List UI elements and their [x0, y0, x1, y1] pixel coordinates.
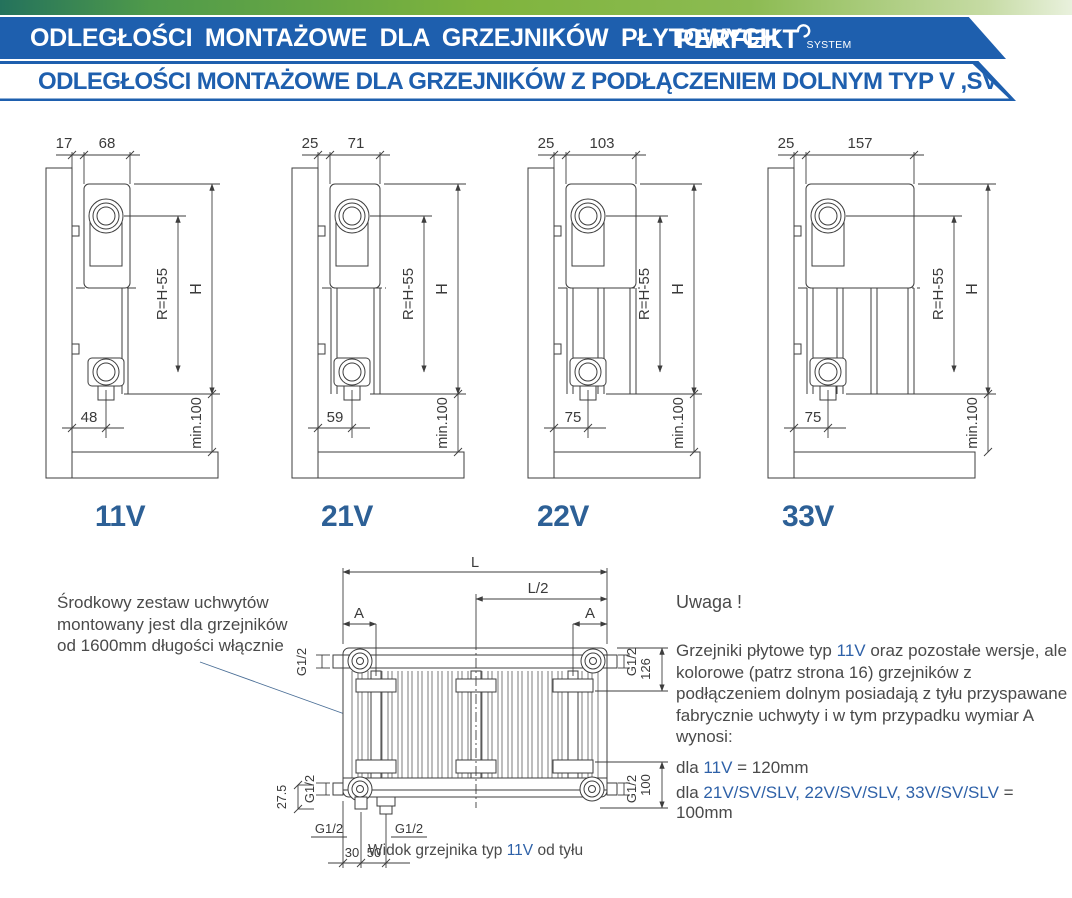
- dim-radius: R=H-55: [930, 268, 947, 320]
- dim-floor-clearance: min.100: [189, 397, 205, 449]
- diagram-22v-drawing: 25 103 R=H-55 H min.100 75: [500, 128, 750, 490]
- back-view-drawing: L L/2 A A G1/2 G1/2 126 G1/2 27.5 G1/2 1…: [270, 556, 680, 886]
- note-line: od 1600mm długości włącznie: [57, 635, 288, 657]
- type-label-21v: 21V: [307, 500, 387, 534]
- type-label-33v: 33V: [768, 500, 848, 534]
- dim-bracket-offset-left: A: [354, 605, 364, 622]
- dim-27-5: 27.5: [275, 785, 289, 809]
- thread-bottom-pipe-left: G1/2: [315, 821, 343, 836]
- dim-wall-gap: 25: [538, 135, 555, 152]
- diagram-11v-drawing: 17 68 R=H-55 H min.100 48: [18, 128, 268, 490]
- dim-floor-clearance: min.100: [671, 397, 687, 449]
- dim-half-length: L/2: [528, 580, 549, 597]
- center-bracket-note: Środkowy zestaw uchwytów montowany jest …: [57, 592, 288, 657]
- dim-radius: R=H-55: [154, 268, 171, 320]
- dim-100: 100: [638, 774, 653, 796]
- caption-suffix: od tyłu: [533, 842, 583, 859]
- note-line: Środkowy zestaw uchwytów: [57, 592, 288, 614]
- dimension-texts: 25 71 R=H-55 H min.100 59: [302, 135, 451, 449]
- title-banner: ODLEGŁOŚCI MONTAŻOWE DLA GRZEJNIKÓW PŁYT…: [0, 17, 1006, 59]
- dim-126: 126: [638, 658, 653, 680]
- thread-top-left: G1/2: [294, 648, 309, 676]
- warning-note: Uwaga ! Grzejniki płytowe typ 11V oraz p…: [676, 592, 1068, 823]
- rule-11v: dla 11V = 120mm: [676, 758, 1068, 778]
- dim-height: H: [670, 283, 687, 295]
- dim-radius: R=H-55: [636, 268, 653, 320]
- rule-value: = 120mm: [732, 758, 808, 777]
- wall-and-radiator: [768, 168, 975, 478]
- diagram-11v: 17 68 R=H-55 H min.100 48: [18, 128, 268, 495]
- warning-paragraph: Grzejniki płytowe typ 11V oraz pozostałe…: [676, 640, 1068, 748]
- dim-bottom-offset: 75: [565, 409, 582, 426]
- diagram-33v-drawing: 25 157 R=H-55 H min.100 75: [740, 128, 1030, 490]
- dim-wall-gap: 17: [56, 135, 73, 152]
- dim-length: L: [471, 556, 479, 571]
- dim-depth: 68: [99, 135, 116, 152]
- brand-logo: PERFEKT SYSTEM: [676, 17, 852, 59]
- dim-30: 30: [345, 845, 359, 860]
- rule-prefix: dla: [676, 758, 703, 777]
- page: ODLEGŁOŚCI MONTAŻOWE DLA GRZEJNIKÓW PŁYT…: [0, 0, 1072, 898]
- dim-bottom-offset: 59: [327, 409, 344, 426]
- rule-other-types: dla 21V/SV/SLV, 22V/SV/SLV, 33V/SV/SLV =…: [676, 783, 1068, 823]
- dimension-texts: 25 157 R=H-55 H min.100 75: [778, 135, 981, 449]
- subtitle-ribbon: ODLEGŁOŚCI MONTAŻOWE DLA GRZEJNIKÓW Z PO…: [0, 61, 1016, 101]
- dim-height: H: [434, 283, 451, 295]
- dim-bottom-offset: 48: [81, 409, 98, 426]
- dim-depth: 71: [348, 135, 365, 152]
- diagram-21v-drawing: 25 71 R=H-55 H min.100 59: [264, 128, 514, 490]
- dimension-texts: 25 103 R=H-55 H min.100 75: [538, 135, 687, 449]
- note-line: montowany jest dla grzejników: [57, 614, 288, 636]
- dim-floor-clearance: min.100: [435, 397, 451, 449]
- bottom-connections: [355, 797, 395, 814]
- subtitle-ribbon-inner: ODLEGŁOŚCI MONTAŻOWE DLA GRZEJNIKÓW Z PO…: [0, 64, 1009, 99]
- dim-wall-gap: 25: [302, 135, 319, 152]
- warning-title: Uwaga !: [676, 592, 1068, 613]
- page-subtitle: ODLEGŁOŚCI MONTAŻOWE DLA GRZEJNIKÓW Z PO…: [38, 64, 1053, 99]
- back-view-caption: Widok grzejnika typ 11V od tyłu: [368, 842, 583, 860]
- page-title: ODLEGŁOŚCI MONTAŻOWE DLA GRZEJNIKÓW PŁYT…: [30, 17, 778, 59]
- dim-bottom-offset: 75: [805, 409, 822, 426]
- caption-type: 11V: [507, 842, 533, 859]
- dim-bracket-offset-right: A: [585, 605, 595, 622]
- dim-height: H: [964, 283, 981, 295]
- diagram-33v: 25 157 R=H-55 H min.100 75: [740, 128, 1030, 495]
- dim-radius: R=H-55: [400, 268, 417, 320]
- thread-bottom-left: G1/2: [302, 775, 317, 803]
- diagram-21v: 25 71 R=H-55 H min.100 59: [264, 128, 514, 495]
- caption-prefix: Widok grzejnika typ: [368, 842, 507, 859]
- diagram-22v: 25 103 R=H-55 H min.100 75: [500, 128, 750, 495]
- type-label-11v: 11V: [80, 500, 160, 534]
- top-green-bar: [0, 0, 1072, 15]
- warning-text: Grzejniki płytowe typ: [676, 641, 837, 660]
- brand-subname: SYSTEM: [807, 39, 852, 51]
- dim-wall-gap: 25: [778, 135, 795, 152]
- rule-types: 21V/SV/SLV, 22V/SV/SLV, 33V/SV/SLV: [703, 783, 999, 802]
- brand-name: PERFEKT: [676, 19, 799, 59]
- dim-depth: 103: [589, 135, 614, 152]
- thread-top-right: G1/2: [624, 648, 639, 676]
- thread-bottom-pipe-right: G1/2: [395, 821, 423, 836]
- warning-type-ref: 11V: [837, 641, 866, 660]
- dim-floor-clearance: min.100: [965, 397, 981, 449]
- dim-height: H: [188, 283, 205, 295]
- dim-depth: 157: [847, 135, 872, 152]
- rule-prefix: dla: [676, 783, 703, 802]
- type-label-22v: 22V: [523, 500, 603, 534]
- rule-types: 11V: [703, 758, 732, 777]
- thread-bottom-right: G1/2: [624, 775, 639, 803]
